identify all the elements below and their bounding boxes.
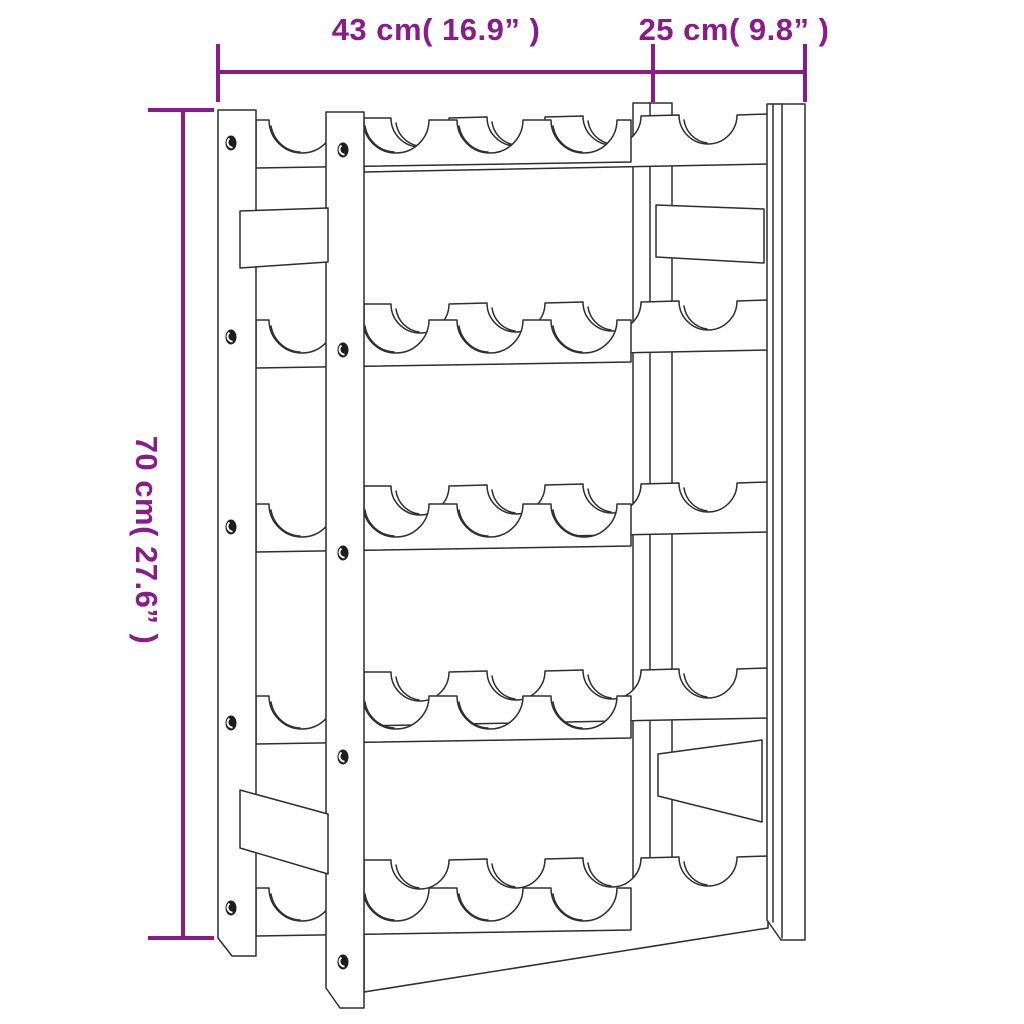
right-bottom-brace xyxy=(658,740,762,822)
dimension-diagram-canvas: 43 cm( 16.9” ) 25 cm( 9.8” ) 70 cm( 27.6… xyxy=(0,0,1024,1024)
back-left-post xyxy=(326,112,364,1008)
right-top-brace xyxy=(656,205,764,263)
back-right-post xyxy=(767,104,805,940)
depth-dimension-label: 25 cm( 9.8” ) xyxy=(639,12,830,47)
wine-rack-dimension-diagram: 43 cm( 16.9” ) 25 cm( 9.8” ) 70 cm( 27.6… xyxy=(0,0,1024,1024)
height-dimension-label: 70 cm( 27.6” ) xyxy=(129,436,164,645)
width-dimension-line xyxy=(218,44,805,102)
left-top-brace xyxy=(240,208,328,268)
wine-rack-drawing xyxy=(218,103,805,1008)
width-dimension-label: 43 cm( 16.9” ) xyxy=(332,12,541,47)
